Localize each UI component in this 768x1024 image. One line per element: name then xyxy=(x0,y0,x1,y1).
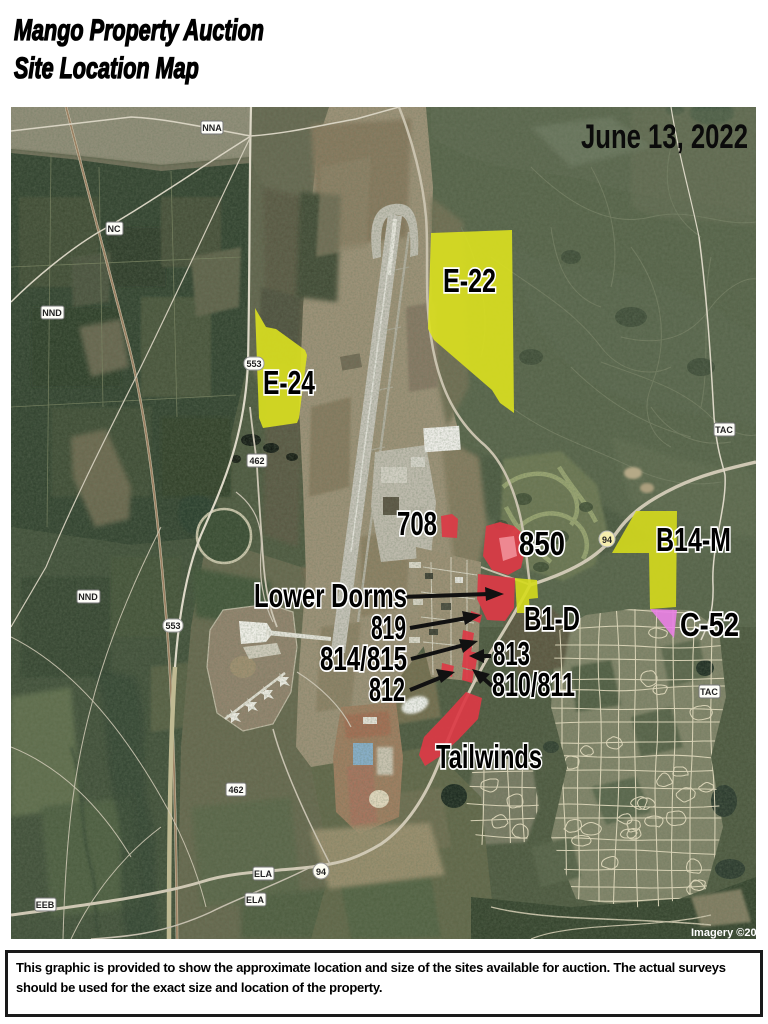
svg-text:B1-D: B1-D xyxy=(524,600,580,637)
svg-text:E-22: E-22 xyxy=(443,262,496,299)
svg-text:Imagery ©20: Imagery ©20 xyxy=(691,927,756,939)
svg-text:708: 708 xyxy=(397,505,437,542)
svg-text:ELA: ELA xyxy=(246,895,265,905)
svg-text:94: 94 xyxy=(602,535,612,545)
svg-text:94: 94 xyxy=(316,867,326,877)
svg-text:C-52: C-52 xyxy=(680,606,739,643)
svg-text:NC: NC xyxy=(108,224,121,234)
svg-text:812: 812 xyxy=(369,671,405,708)
svg-text:NND: NND xyxy=(42,308,62,318)
svg-text:E-24: E-24 xyxy=(263,364,315,401)
svg-text:TAC: TAC xyxy=(700,687,718,697)
svg-text:850: 850 xyxy=(519,525,565,562)
svg-text:B14-M: B14-M xyxy=(656,521,731,558)
svg-text:TAC: TAC xyxy=(715,425,733,435)
svg-text:810/811: 810/811 xyxy=(492,666,575,703)
svg-text:553: 553 xyxy=(246,359,261,369)
svg-text:553: 553 xyxy=(165,621,180,631)
svg-text:ELA: ELA xyxy=(254,869,273,879)
svg-text:June 13, 2022: June 13, 2022 xyxy=(581,118,748,156)
svg-text:Tailwinds: Tailwinds xyxy=(436,738,542,775)
svg-text:NND: NND xyxy=(78,592,98,602)
svg-text:NNA: NNA xyxy=(202,123,222,133)
svg-text:462: 462 xyxy=(228,785,243,795)
svg-text:EEB: EEB xyxy=(36,900,55,910)
svg-text:462: 462 xyxy=(249,456,264,466)
